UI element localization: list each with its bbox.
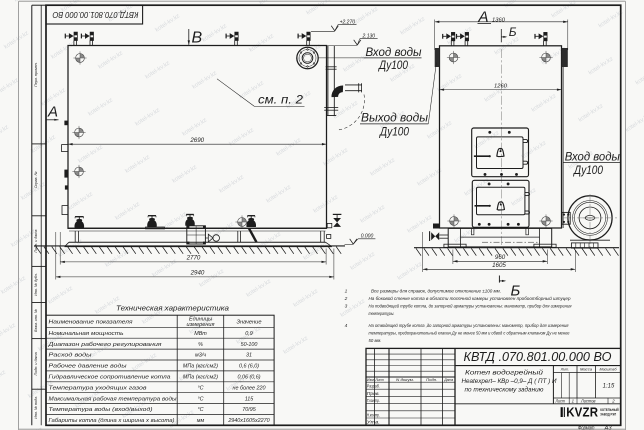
svg-text:Температура воды (вход/выход): Температура воды (вход/выход) bbox=[49, 407, 153, 413]
svg-text:2: 2 bbox=[344, 296, 348, 302]
svg-text:ЗАВОД РЭП: ЗАВОД РЭП bbox=[600, 413, 616, 417]
svg-text:м3/ч: м3/ч bbox=[195, 353, 206, 359]
svg-text:Справ. №: Справ. № bbox=[34, 171, 38, 188]
svg-text:Подп. и дата: Подп. и дата bbox=[34, 352, 38, 375]
svg-text:Масштаб: Масштаб bbox=[600, 367, 618, 372]
svg-text:КОТЕЛЬНЫЙ: КОТЕЛЬНЫЙ bbox=[600, 408, 619, 412]
svg-text:1360: 1360 bbox=[492, 17, 506, 23]
svg-text:Температура уходящих газов: Температура уходящих газов bbox=[49, 385, 147, 391]
svg-text:Габариты котла (длина х ширина: Габариты котла (длина х ширина х высота) bbox=[49, 418, 175, 424]
svg-text:мм: мм bbox=[197, 418, 205, 424]
svg-text:%: % bbox=[198, 342, 203, 348]
svg-text:115: 115 bbox=[245, 396, 255, 402]
svg-text:На отводящей трубе котла ,до з: На отводящей трубе котла ,до запорной ар… bbox=[369, 322, 569, 329]
svg-text:Расход воды: Расход воды bbox=[49, 353, 93, 359]
svg-text:Подп.: Подп. bbox=[426, 377, 437, 382]
svg-text:Листов: Листов bbox=[580, 399, 596, 404]
svg-text:4: 4 bbox=[345, 323, 348, 329]
svg-text:31: 31 bbox=[246, 353, 252, 359]
svg-text:Ду100: Ду100 bbox=[378, 127, 409, 139]
svg-text:Котел водогрейный: Котел водогрейный bbox=[465, 368, 544, 376]
svg-text:Н.контр.: Н.контр. bbox=[367, 412, 380, 417]
svg-text:2940: 2940 bbox=[190, 270, 205, 277]
svg-text:2940х1605х2270: 2940х1605х2270 bbox=[227, 418, 269, 424]
svg-text:Т.контр.: Т.контр. bbox=[367, 398, 380, 403]
svg-text:КВТД .070.801.00.000 ВО: КВТД .070.801.00.000 ВО bbox=[464, 349, 612, 364]
svg-text:1: 1 bbox=[345, 288, 348, 294]
svg-text:Вход воды: Вход воды bbox=[366, 47, 423, 59]
svg-text:КВТД.070.801.00.000 ВО: КВТД.070.801.00.000 ВО bbox=[53, 10, 139, 19]
svg-text:А: А bbox=[478, 9, 489, 26]
svg-text:не более 220: не более 220 bbox=[233, 385, 266, 391]
svg-text:Все размеры для справок, допус: Все размеры для справок, допустимое откл… bbox=[371, 288, 501, 294]
svg-text:Лист: Лист bbox=[375, 377, 385, 382]
svg-text:3: 3 bbox=[345, 303, 348, 309]
svg-text:А3: А3 bbox=[603, 426, 611, 430]
svg-text:измерения: измерения bbox=[187, 322, 215, 328]
svg-text:Взам. инв. №: Взам. инв. № bbox=[34, 309, 38, 332]
svg-text:температуры.: температуры. bbox=[369, 312, 395, 317]
svg-text:N докум.: N докум. bbox=[396, 377, 414, 382]
svg-text:0,9: 0,9 bbox=[245, 331, 253, 337]
svg-text:0,06 (0,6): 0,06 (0,6) bbox=[237, 375, 260, 381]
svg-text:по техническому заданию: по техническому заданию bbox=[465, 385, 544, 393]
svg-text:50-100: 50-100 bbox=[241, 342, 258, 348]
svg-text:50 мм.: 50 мм. bbox=[369, 338, 382, 344]
svg-text:МПа (кгс/см2): МПа (кгс/см2) bbox=[183, 364, 218, 370]
svg-text:Инв. № подл.: Инв. № подл. bbox=[34, 396, 38, 419]
svg-text:1260: 1260 bbox=[494, 83, 508, 89]
svg-text:2770: 2770 bbox=[186, 255, 201, 262]
svg-text:Инв. № дубл.: Инв. № дубл. bbox=[34, 273, 38, 296]
svg-text:°С: °С bbox=[197, 407, 203, 413]
svg-text:960: 960 bbox=[495, 254, 506, 261]
svg-text:см. п. 2: см. п. 2 bbox=[258, 93, 303, 107]
svg-text:0.000: 0.000 bbox=[361, 233, 374, 239]
svg-text:Ду100: Ду100 bbox=[377, 60, 408, 72]
svg-text:Ду100: Ду100 bbox=[572, 165, 603, 177]
svg-text:1605: 1605 bbox=[492, 262, 506, 269]
svg-text:Изм: Изм bbox=[367, 377, 374, 382]
svg-text:Лит.: Лит. bbox=[560, 367, 569, 372]
svg-text:Разраб.: Разраб. bbox=[367, 384, 380, 389]
svg-text:70/95: 70/95 bbox=[242, 407, 256, 413]
svg-text:0,6 (6,0): 0,6 (6,0) bbox=[239, 364, 259, 370]
svg-text:Значение: Значение bbox=[237, 319, 262, 325]
svg-text:°С: °С bbox=[197, 396, 203, 402]
svg-text:МПа (кгс/см2): МПа (кгс/см2) bbox=[183, 375, 218, 381]
svg-text:температуры, предохранительный: температуры, предохранительный клапан Ду… bbox=[369, 330, 570, 337]
svg-text:Выход воды: Выход воды bbox=[361, 113, 429, 125]
svg-text:°С: °С bbox=[197, 385, 203, 391]
svg-text:Масса: Масса bbox=[580, 367, 593, 372]
svg-text:Диапазон рабочего регулировани: Диапазон рабочего регулирования bbox=[47, 342, 161, 348]
svg-text:Перв. примен.: Перв. примен. bbox=[34, 62, 38, 87]
svg-text:Лист: Лист bbox=[555, 399, 566, 404]
svg-text:1:15: 1:15 bbox=[603, 384, 615, 390]
svg-text:Номинальная мощность: Номинальная мощность bbox=[49, 331, 124, 337]
svg-text:Heatexpert– КВр –0,9– Д ( ПТ ): Heatexpert– КВр –0,9– Д ( ПТ ) И bbox=[462, 378, 557, 385]
svg-text:Формат: Формат bbox=[578, 426, 595, 430]
svg-text:Максимальная рабочая температу: Максимальная рабочая температура воды bbox=[49, 396, 178, 402]
svg-text:2690: 2690 bbox=[189, 137, 204, 144]
svg-text:+2.270: +2.270 bbox=[340, 19, 356, 25]
svg-text:Утв.: Утв. bbox=[367, 420, 380, 425]
svg-text:Наименование показателя: Наименование показателя bbox=[49, 319, 133, 325]
svg-text:Техническая характеристика: Техническая характеристика bbox=[116, 304, 229, 313]
svg-text:На боковой стенке котла в обла: На боковой стенке котла в области топочн… bbox=[369, 295, 571, 302]
svg-text:В: В bbox=[192, 30, 203, 47]
svg-text:Дата: Дата bbox=[443, 377, 454, 382]
svg-text:KVZR: KVZR bbox=[566, 406, 598, 420]
svg-text:Пров.: Пров. bbox=[367, 391, 380, 396]
svg-text:2.130: 2.130 bbox=[362, 33, 376, 39]
svg-text:Вход воды: Вход воды bbox=[565, 151, 621, 163]
svg-text:Рабочее давление воды: Рабочее давление воды bbox=[49, 364, 128, 370]
svg-text:Подп. и дата: Подп. и дата bbox=[34, 230, 38, 253]
svg-text:А: А bbox=[47, 104, 58, 121]
svg-text:Гидравлическое сопротивление к: Гидравлическое сопротивление котла bbox=[49, 375, 171, 381]
svg-text:На подводящей трубе котла, до: На подводящей трубе котла, до запорной а… bbox=[369, 302, 572, 309]
svg-text:МВт: МВт bbox=[194, 331, 207, 337]
svg-text:Б: Б bbox=[509, 25, 517, 39]
